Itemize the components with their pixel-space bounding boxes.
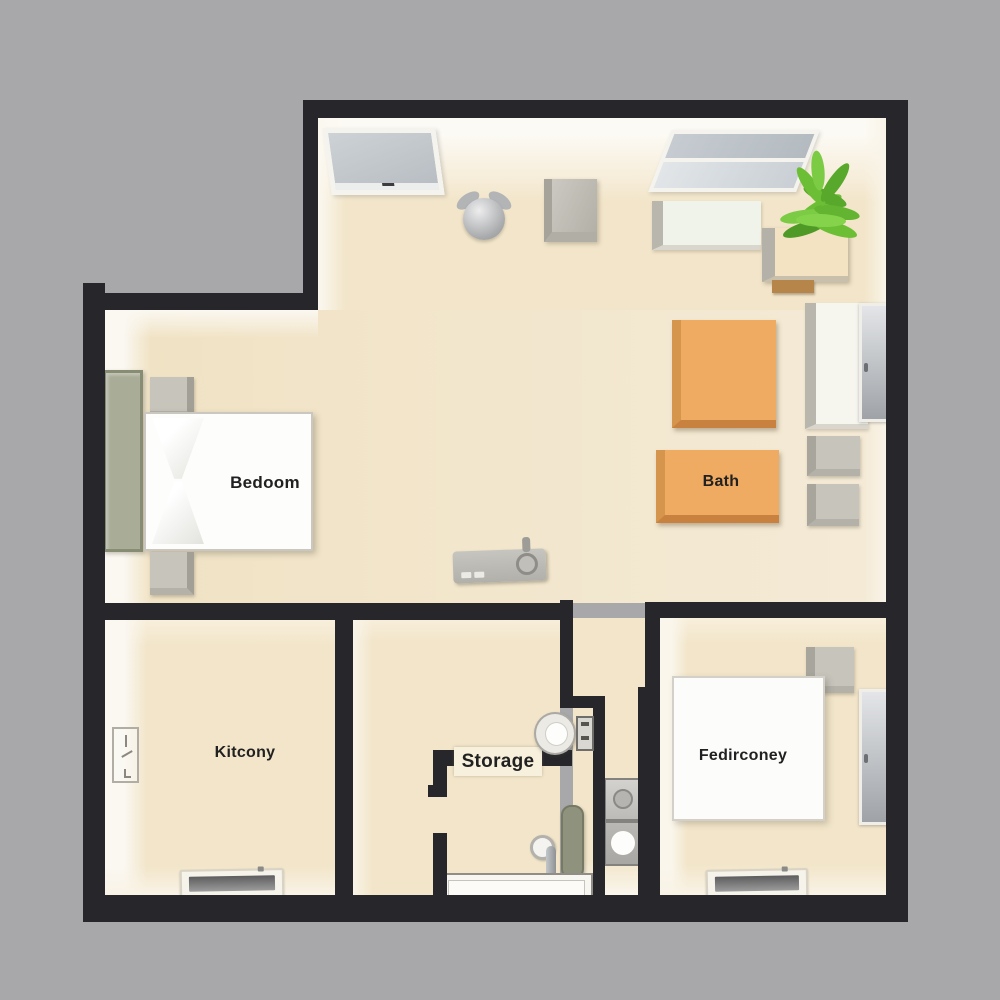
panel-mark — [121, 750, 132, 758]
stool-cube-2 — [807, 484, 859, 526]
panel-mark — [125, 735, 127, 747]
inner-wall-corridor-upper — [560, 600, 573, 708]
console-button — [461, 572, 471, 578]
potted-fern-icon — [778, 162, 866, 254]
toilet-control-panel — [576, 716, 594, 751]
remote-console — [452, 548, 546, 583]
panel-button — [581, 722, 589, 726]
storage-wall-left-lower — [433, 833, 447, 895]
dryer-unit — [604, 778, 640, 821]
console-stub — [522, 537, 531, 552]
storage-label: Storage — [462, 751, 535, 773]
storage-wall-door-nub — [428, 785, 447, 797]
bedroom2-label: Fedirconey — [699, 747, 787, 765]
inner-wall-bedroom2-left — [645, 602, 660, 905]
nightstand-bottom — [150, 552, 194, 595]
storage-cube — [544, 179, 597, 242]
inner-wall-bedroom2-left-step — [638, 687, 645, 905]
vent-knob — [258, 867, 264, 872]
inner-wall-corridor-lower — [593, 700, 605, 905]
toilet — [534, 712, 576, 755]
vent-slot — [715, 875, 800, 892]
toilet-bowl — [545, 722, 568, 746]
bedroom-label: Bedoom — [230, 473, 300, 493]
washer-door — [611, 831, 635, 855]
side-table — [672, 320, 776, 428]
kitchen-label: Kitcony — [215, 744, 276, 762]
ceiling-lamp — [460, 190, 508, 240]
vent-knob — [782, 867, 788, 872]
floor-plan: Bedoom Bath — [0, 0, 1000, 1000]
dryer-dial — [613, 789, 633, 809]
pillow-icon — [151, 418, 205, 480]
towel-bar — [561, 805, 584, 879]
door-handle — [864, 754, 868, 763]
window-pane-upper — [665, 134, 814, 158]
inner-wall-kitchen-divider — [335, 603, 353, 905]
bath-label: Bath — [703, 473, 740, 491]
washer-dryer-stack — [604, 778, 640, 866]
outer-wall-top — [303, 100, 908, 118]
stool-cube-1 — [807, 436, 860, 476]
panel-mark — [124, 769, 131, 778]
panel-button — [581, 736, 589, 740]
lamp-globe — [463, 198, 505, 240]
light-switch-panel — [112, 727, 139, 783]
outer-wall-right — [886, 100, 908, 922]
window-handle — [382, 183, 394, 186]
vent-slot — [189, 875, 275, 892]
window — [322, 128, 444, 195]
inner-wall-bedroom2-top — [645, 602, 886, 618]
console-dial — [516, 553, 539, 576]
planter-base — [772, 280, 814, 293]
washer-unit — [604, 821, 640, 866]
outer-wall-bottom — [83, 895, 908, 922]
door-handle — [864, 363, 868, 372]
pillow-icon — [151, 480, 205, 544]
wardrobe — [103, 370, 143, 552]
outer-wall-upper-left — [303, 100, 318, 310]
bench — [652, 201, 761, 250]
outer-wall-step — [83, 293, 318, 310]
pillows — [151, 418, 205, 544]
console-button — [474, 572, 484, 578]
